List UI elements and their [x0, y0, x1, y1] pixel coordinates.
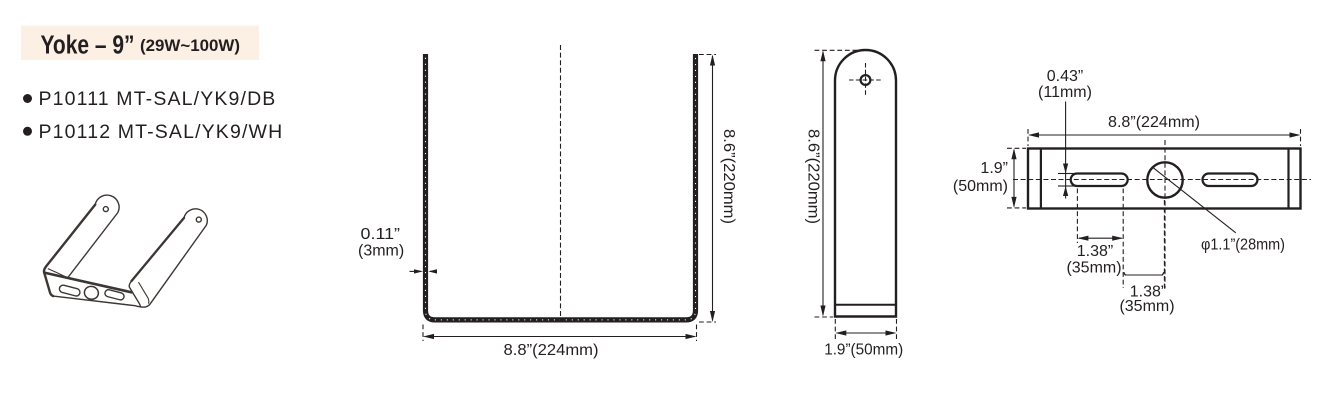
svg-text:(35mm): (35mm): [1066, 260, 1121, 277]
svg-text:(50mm): (50mm): [953, 178, 1008, 195]
svg-text:(29W~100W): (29W~100W): [140, 36, 240, 55]
svg-text:(11mm): (11mm): [1038, 84, 1092, 101]
svg-text:8.6”(220mm): 8.6”(220mm): [720, 129, 737, 224]
svg-text:φ1.1”(28mm): φ1.1”(28mm): [1201, 237, 1285, 254]
svg-text:P10111 MT-SAL/YK9/DB: P10111 MT-SAL/YK9/DB: [39, 88, 277, 110]
svg-text:8.8”(224mm): 8.8”(224mm): [504, 342, 599, 359]
svg-text:Yoke – 9”: Yoke – 9”: [41, 31, 135, 59]
svg-text:1.9”(50mm): 1.9”(50mm): [824, 342, 903, 359]
svg-text:8.6”(220mm): 8.6”(220mm): [804, 129, 821, 224]
svg-text:P10112 MT-SAL/YK9/WH: P10112 MT-SAL/YK9/WH: [39, 121, 284, 143]
svg-text:0.11”: 0.11”: [361, 226, 401, 243]
svg-text:(35mm): (35mm): [1119, 298, 1174, 315]
svg-text:(3mm): (3mm): [358, 243, 404, 260]
svg-text:8.8”(224mm): 8.8”(224mm): [1108, 114, 1200, 131]
svg-text:1.9”: 1.9”: [980, 160, 1008, 177]
svg-text:0.43”: 0.43”: [1047, 68, 1083, 85]
svg-text:1.38”: 1.38”: [1077, 243, 1113, 260]
